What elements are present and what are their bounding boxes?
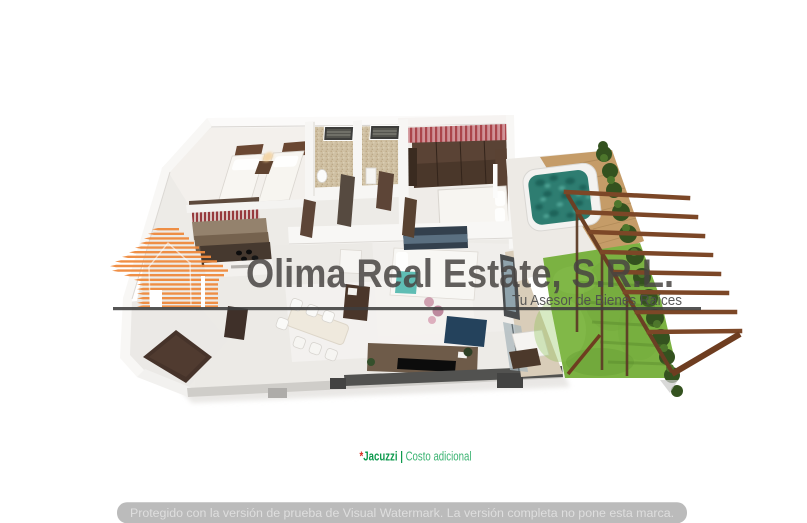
svg-text:Protegido con la versión de pr: Protegido con la versión de prueba de Vi… bbox=[130, 506, 674, 520]
svg-text:Tu Asesor de Bienes Raíces: Tu Asesor de Bienes Raíces bbox=[512, 292, 682, 309]
svg-text:*Jacuzzi | Costo adicional: *Jacuzzi | Costo adicional bbox=[360, 450, 472, 464]
svg-text:Olima Real Estate, S.R.L.: Olima Real Estate, S.R.L. bbox=[246, 252, 674, 296]
